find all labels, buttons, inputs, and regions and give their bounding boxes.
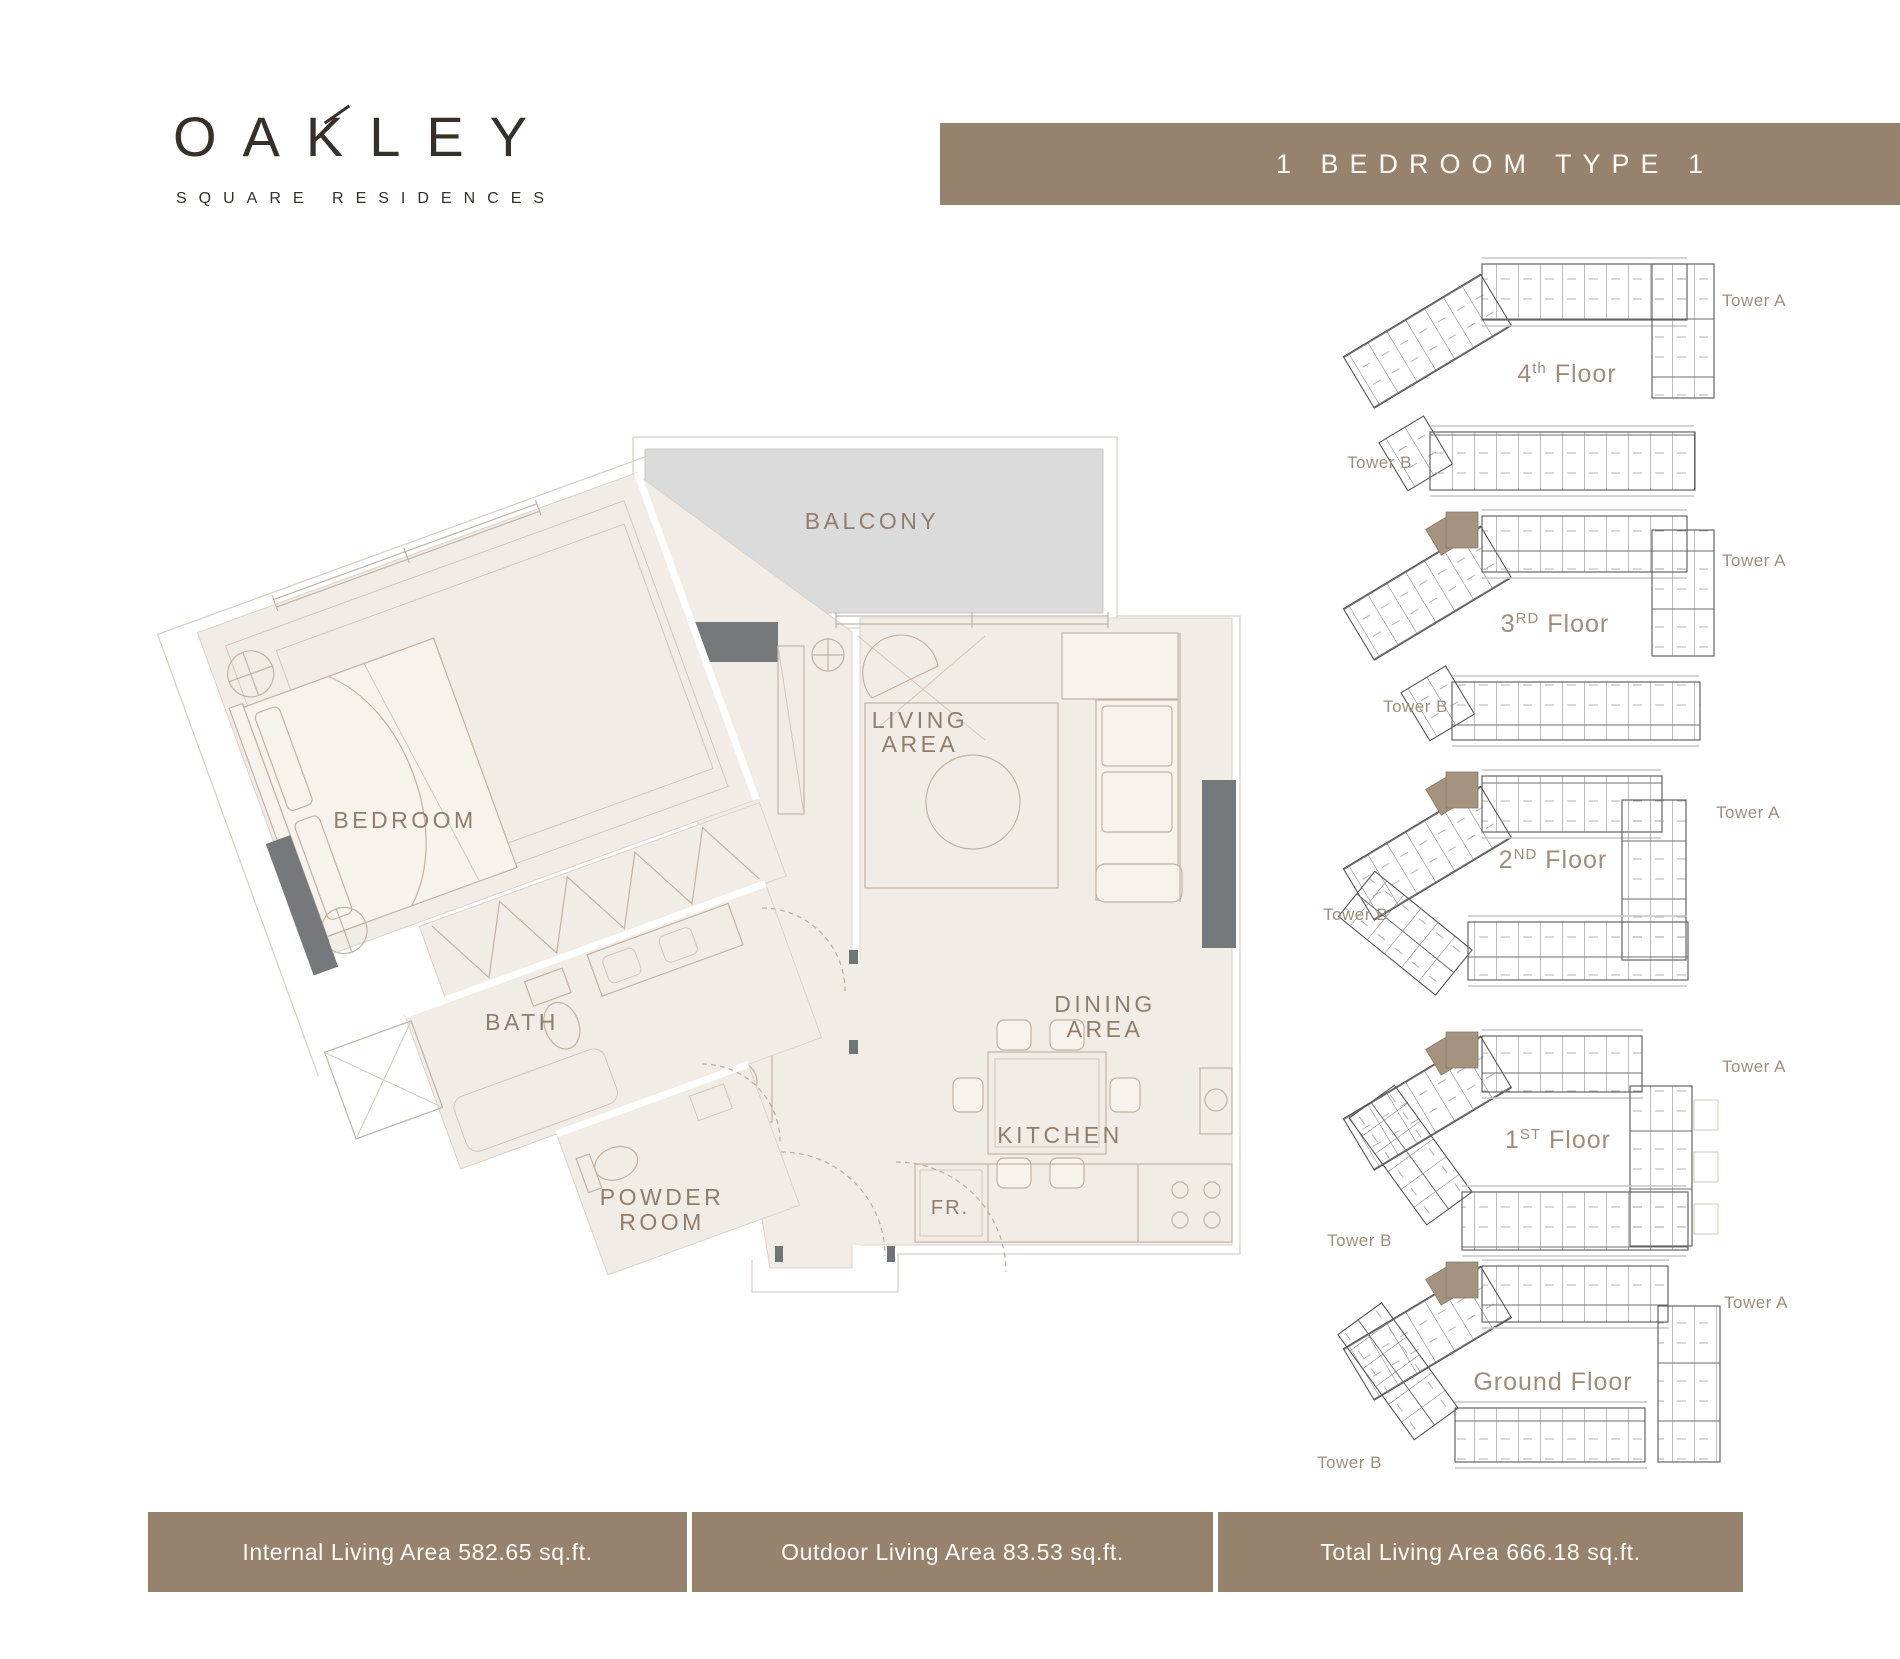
- light-fixture-symbol: [812, 639, 844, 671]
- tower-b-label: Tower B: [1317, 1453, 1382, 1472]
- tower-a-label: Tower A: [1722, 551, 1786, 570]
- plate-1st-floor: [1343, 1030, 1718, 1256]
- tower-a-label: Tower A: [1722, 1057, 1786, 1076]
- living-area-label-1: LIVING: [872, 707, 968, 733]
- outdoor-area-value: Outdoor Living Area 83.53 sq.ft.: [781, 1539, 1124, 1566]
- outdoor-area-bar: Outdoor Living Area 83.53 sq.ft.: [692, 1512, 1213, 1592]
- floorplan-graphic: BALCONY: [0, 0, 1900, 1659]
- tower-a-label: Tower A: [1716, 803, 1780, 822]
- floor-locator: 4th FloorTower ATower B3RD FloorTower AT…: [1317, 258, 1788, 1472]
- kitchen-label: KITCHEN: [997, 1122, 1122, 1148]
- floor-label-1: 1ST Floor: [1505, 1126, 1611, 1154]
- highlighted-unit: [1446, 1262, 1478, 1298]
- highlighted-unit: [1446, 1032, 1478, 1068]
- tower-b-label: Tower B: [1347, 453, 1412, 472]
- tower-b-label: Tower B: [1327, 1231, 1392, 1250]
- brochure-page: OAKLEY SQUARE RESIDENCES 1 BEDROOM TYPE …: [0, 0, 1900, 1659]
- powder-room-label-1: POWDER: [600, 1184, 725, 1210]
- dining-area-label-1: DINING: [1054, 991, 1156, 1017]
- floor-label-ground: Ground Floor: [1473, 1368, 1632, 1396]
- wall-segment-living: [1202, 780, 1236, 948]
- highlighted-unit: [1446, 512, 1478, 548]
- door-jamb: [849, 950, 858, 964]
- living-area-label-2: AREA: [882, 731, 959, 757]
- floor-opening-patch: [848, 960, 864, 1245]
- internal-area-bar: Internal Living Area 582.65 sq.ft.: [148, 1512, 687, 1592]
- plate-3rd-floor-tower-a: [1343, 510, 1714, 660]
- plate-ground-floor: [1338, 1260, 1720, 1468]
- fridge-label: FR.: [931, 1197, 969, 1219]
- total-area-value: Total Living Area 666.18 sq.ft.: [1320, 1539, 1640, 1566]
- total-area-bar: Total Living Area 666.18 sq.ft.: [1218, 1512, 1743, 1592]
- balcony-label: BALCONY: [805, 508, 939, 534]
- internal-area-value: Internal Living Area 582.65 sq.ft.: [242, 1539, 592, 1566]
- tower-a-label: Tower A: [1722, 291, 1786, 310]
- dining-area-label-2: AREA: [1067, 1016, 1144, 1042]
- door-jamb: [849, 1040, 858, 1054]
- powder-room-label-2: ROOM: [619, 1209, 705, 1235]
- plate-4th-floor-tower-b: [1379, 416, 1695, 496]
- floor-label-3: 3RD Floor: [1501, 610, 1609, 638]
- tower-a-label: Tower A: [1724, 1293, 1788, 1312]
- floor-label-2: 2ND Floor: [1499, 846, 1607, 874]
- door-jamb: [775, 1246, 783, 1262]
- door-jamb: [887, 1246, 895, 1262]
- bath-label: BATH: [485, 1009, 559, 1035]
- unit-floorplan: BALCONY: [158, 437, 1240, 1345]
- tower-b-label: Tower B: [1323, 905, 1388, 924]
- highlighted-unit: [1446, 772, 1478, 808]
- plate-2nd-floor: [1338, 770, 1688, 995]
- tower-b-label: Tower B: [1383, 697, 1448, 716]
- bedroom-label: BEDROOM: [333, 807, 476, 833]
- floor-label-4: 4th Floor: [1517, 360, 1616, 388]
